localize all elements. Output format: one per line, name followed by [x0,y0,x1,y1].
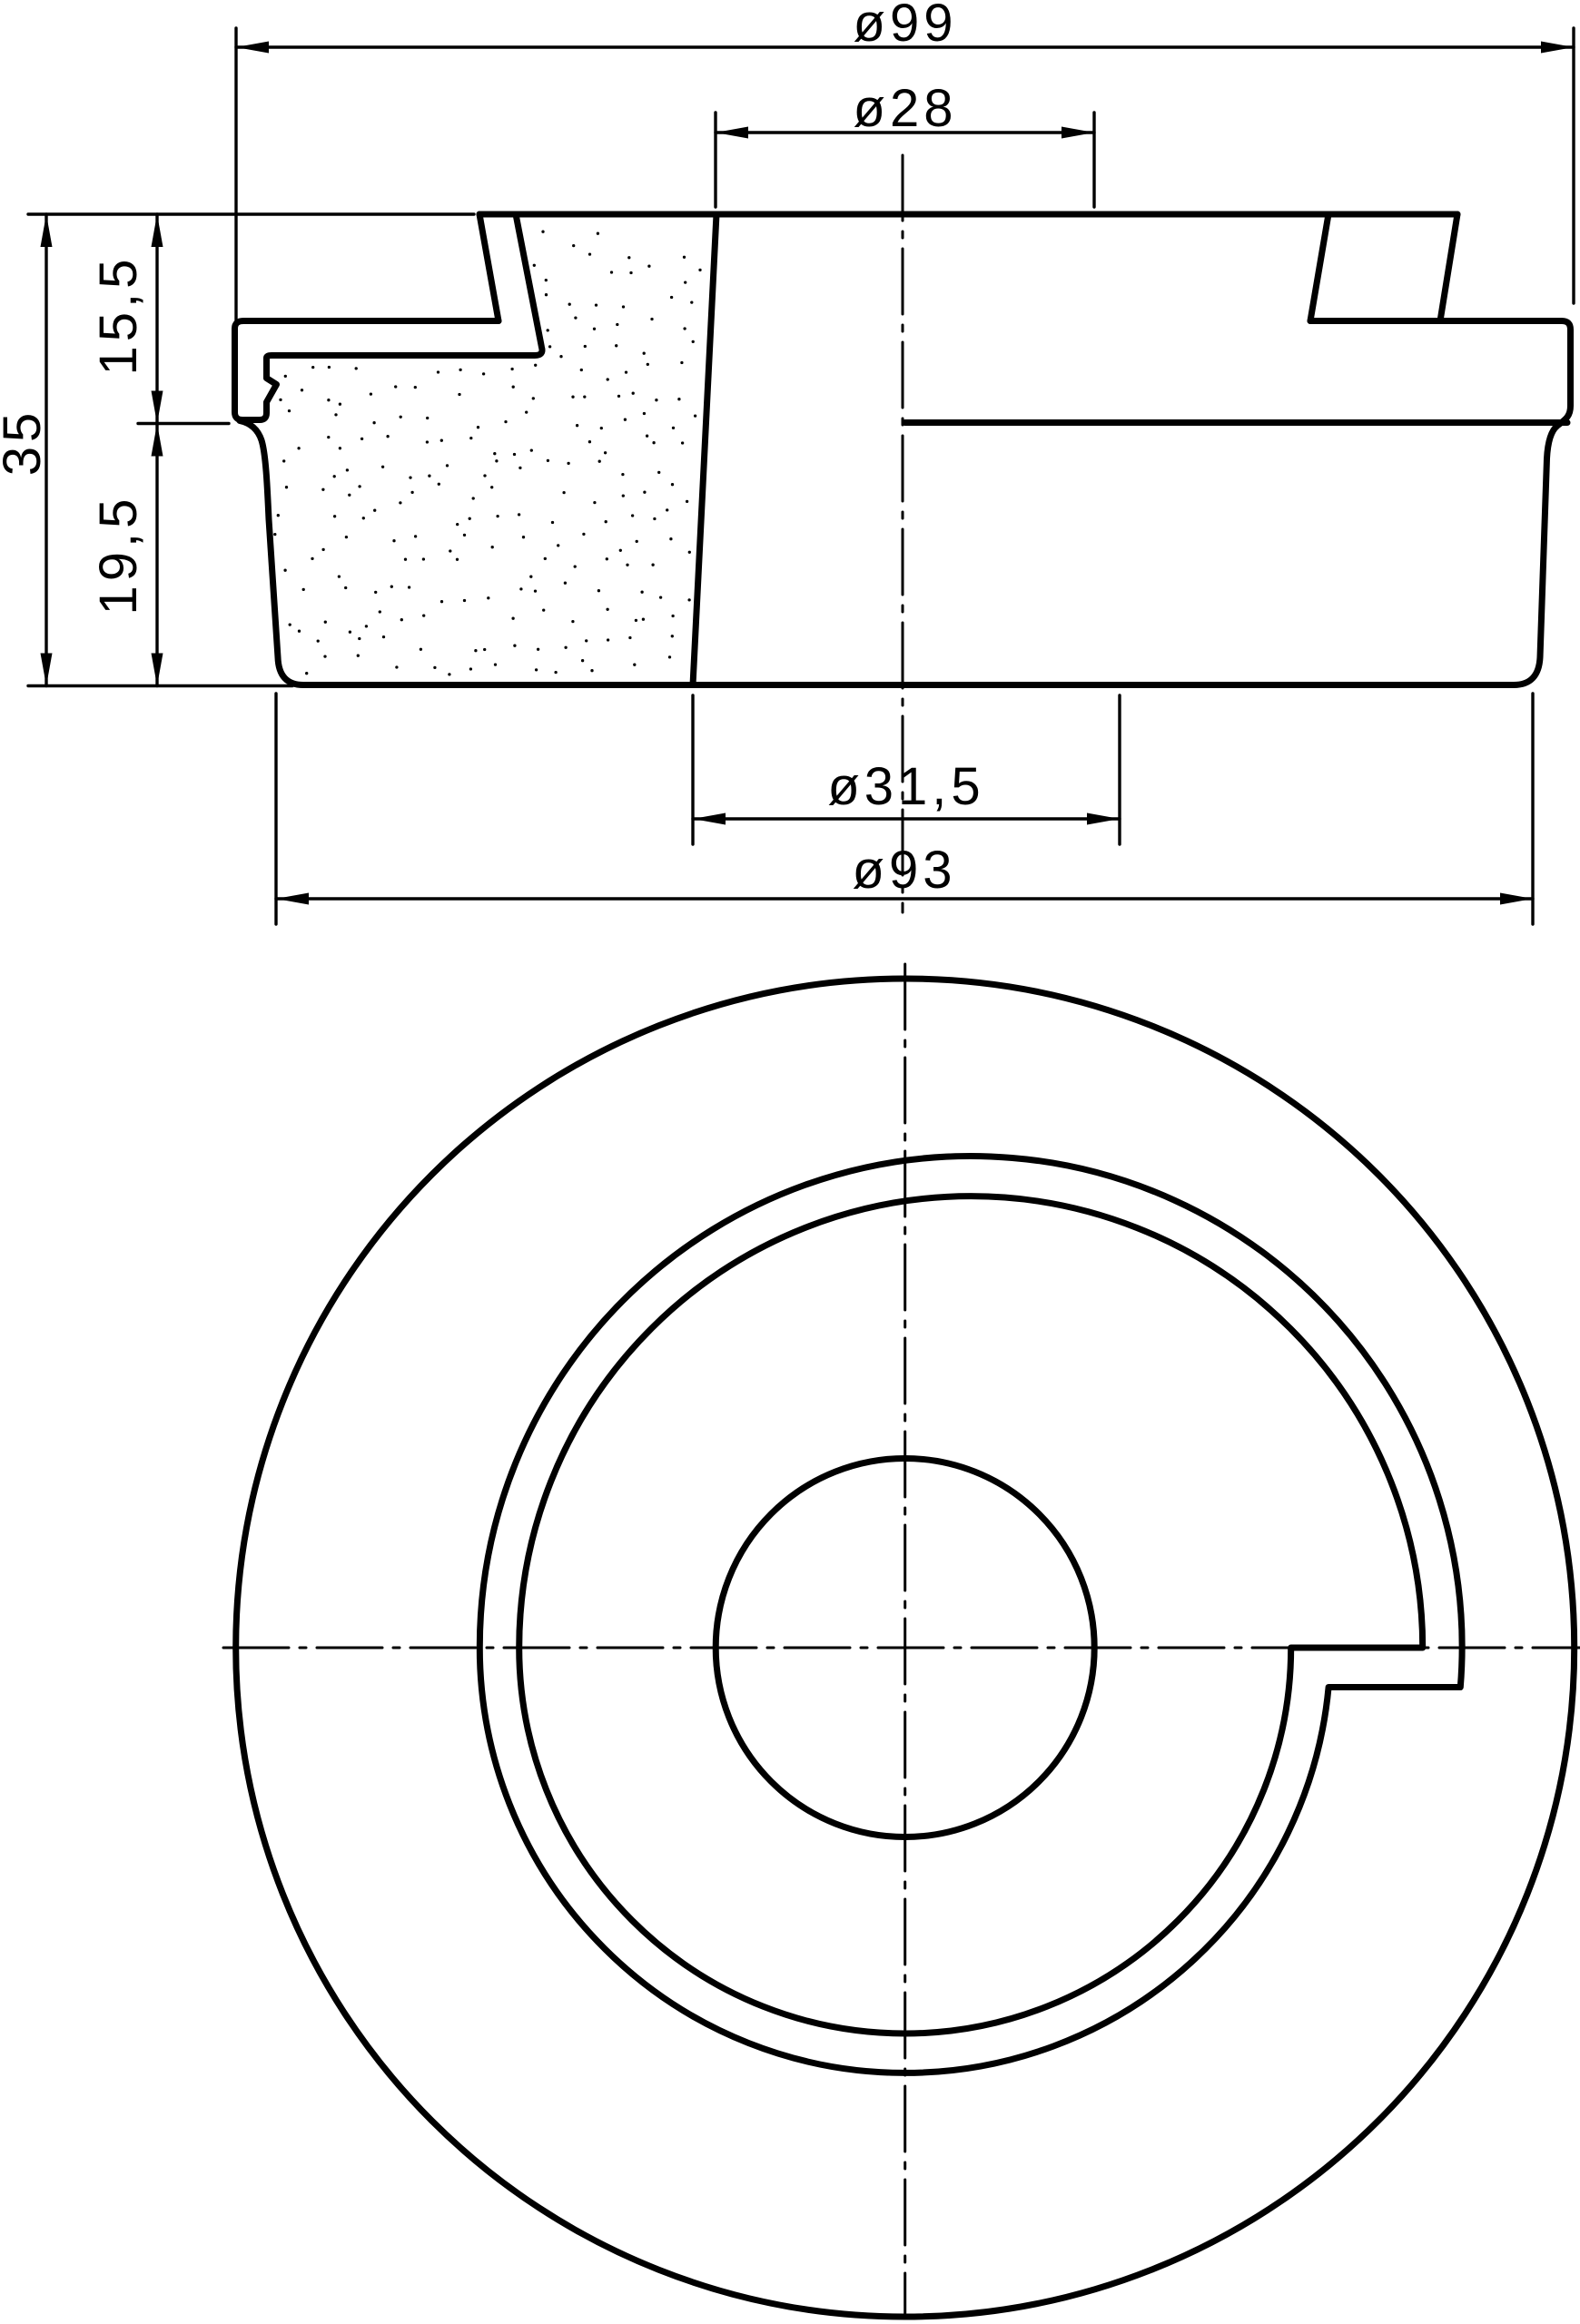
svg-text:ø31,5: ø31,5 [827,757,984,816]
svg-text:ø99: ø99 [854,0,958,53]
svg-text:ø28: ø28 [854,79,958,138]
svg-text:ø93: ø93 [853,841,957,900]
svg-text:19,5: 19,5 [89,495,148,615]
svg-text:15,5: 15,5 [89,255,148,376]
svg-text:35: 35 [0,409,52,477]
